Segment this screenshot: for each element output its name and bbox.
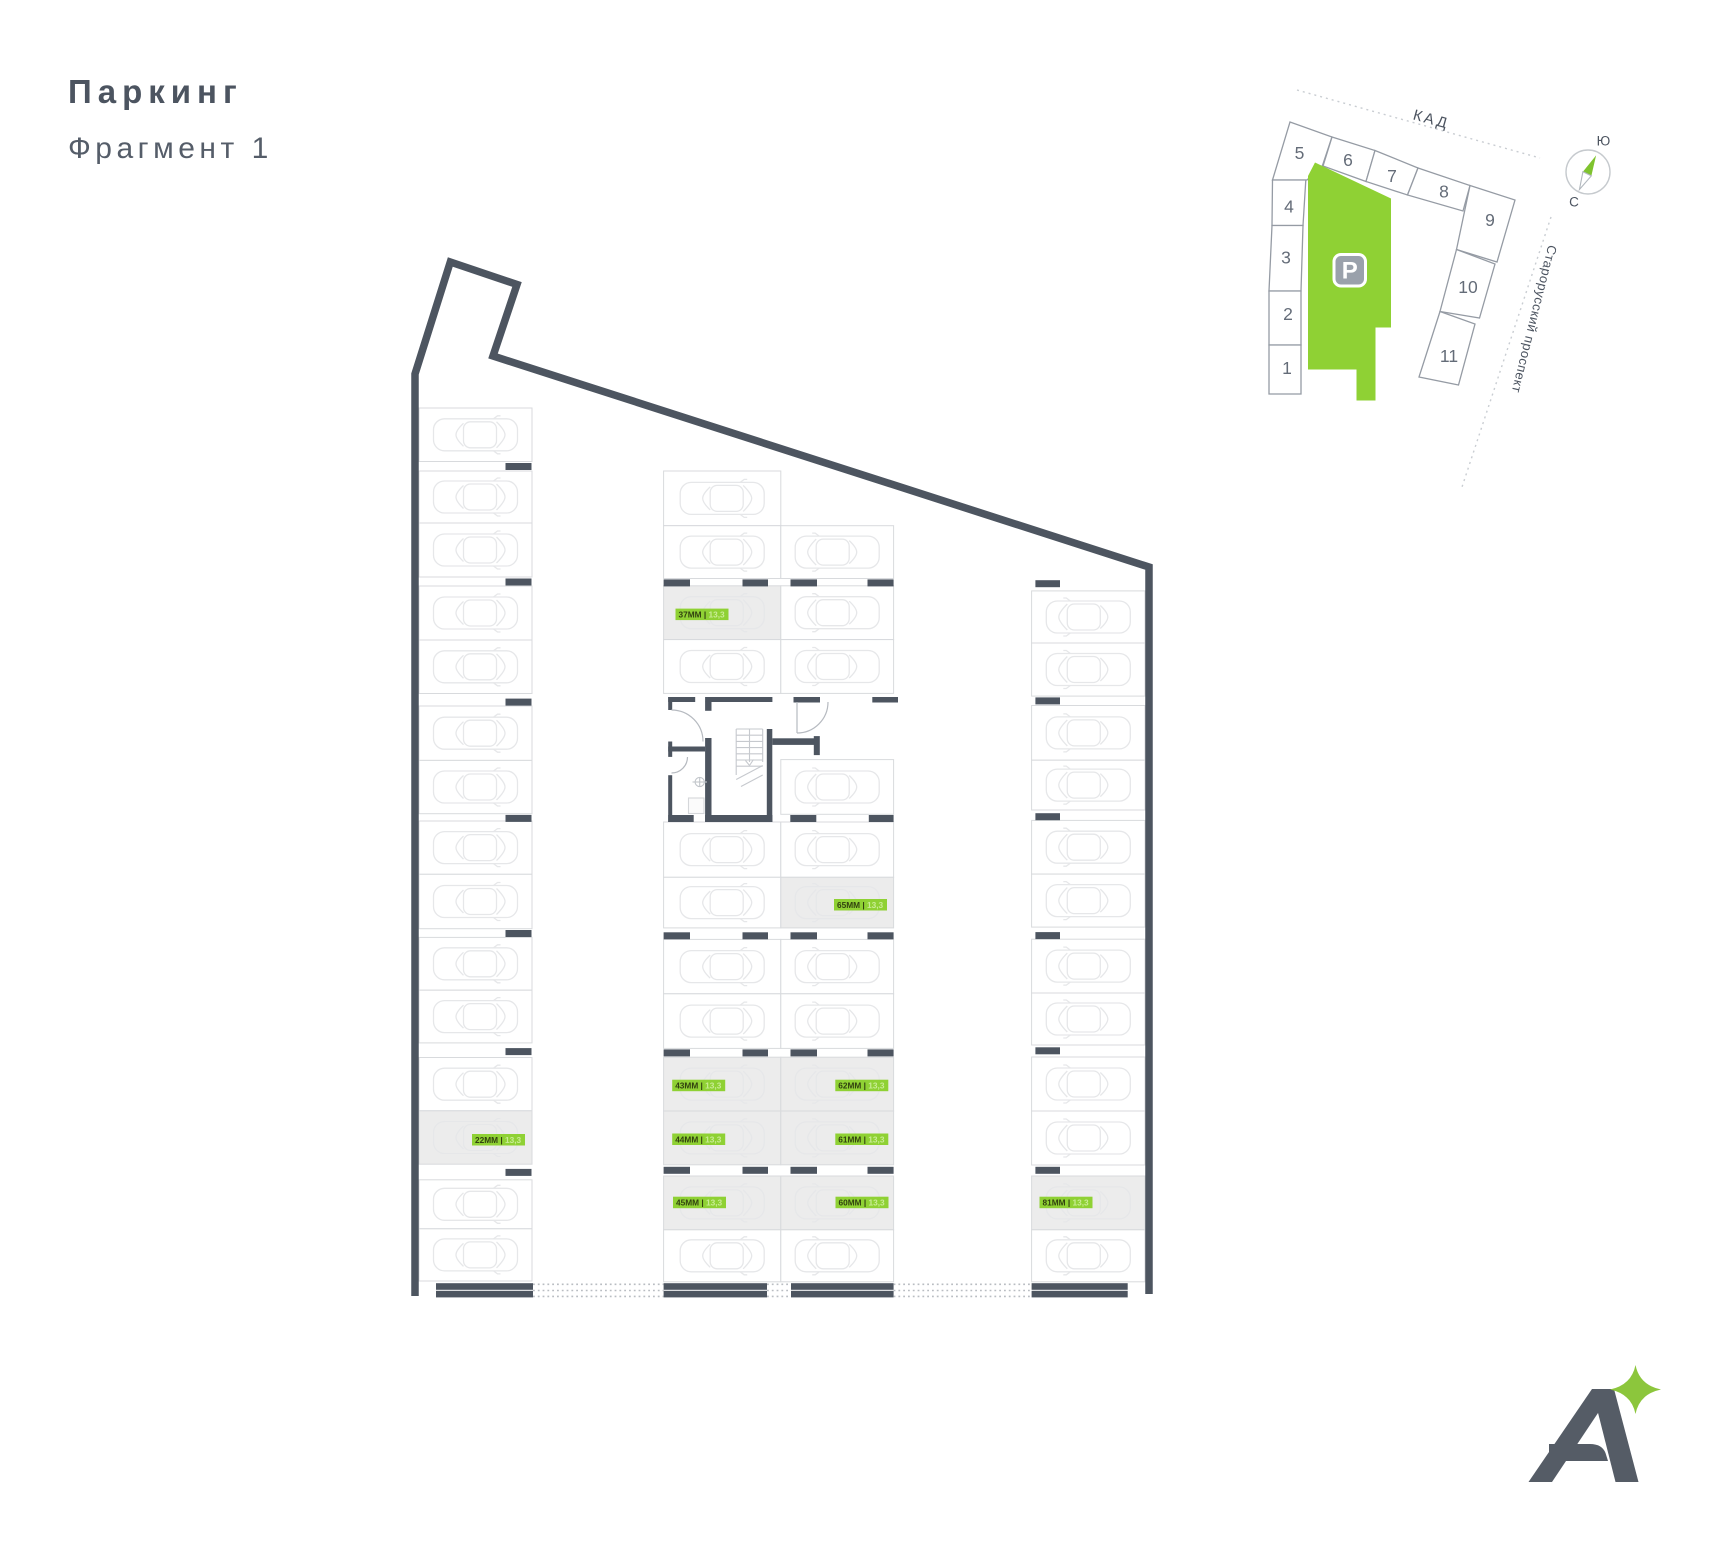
- svg-text:P: P: [1342, 258, 1358, 285]
- svg-text:4: 4: [1284, 197, 1294, 217]
- svg-text:2: 2: [1283, 304, 1293, 324]
- svg-text:65ММ | 13,3: 65ММ | 13,3: [837, 900, 884, 910]
- svg-text:9: 9: [1485, 210, 1495, 230]
- svg-text:11: 11: [1440, 346, 1458, 366]
- svg-text:22ММ | 13,3: 22ММ | 13,3: [475, 1135, 522, 1145]
- svg-text:Паркинг: Паркинг: [68, 73, 243, 110]
- svg-text:Старорусский проспект: Старорусский проспект: [1509, 244, 1560, 395]
- svg-text:КАД: КАД: [1411, 107, 1451, 133]
- svg-text:Ю: Ю: [1597, 134, 1611, 149]
- svg-text:44ММ | 13,3: 44ММ | 13,3: [675, 1134, 722, 1144]
- svg-text:3: 3: [1281, 248, 1291, 268]
- svg-text:5: 5: [1295, 143, 1305, 163]
- svg-text:81ММ | 13,3: 81ММ | 13,3: [1043, 1198, 1090, 1208]
- svg-text:62ММ | 13,3: 62ММ | 13,3: [838, 1081, 885, 1091]
- svg-text:61ММ | 13,3: 61ММ | 13,3: [838, 1134, 885, 1144]
- svg-text:37ММ | 13,3: 37ММ | 13,3: [679, 610, 726, 620]
- svg-text:43ММ | 13,3: 43ММ | 13,3: [675, 1081, 722, 1091]
- svg-text:Фрагмент 1: Фрагмент 1: [68, 132, 273, 165]
- svg-text:7: 7: [1387, 166, 1397, 186]
- svg-text:45ММ | 13,3: 45ММ | 13,3: [676, 1198, 723, 1208]
- svg-text:8: 8: [1439, 182, 1449, 202]
- svg-text:60ММ | 13,3: 60ММ | 13,3: [839, 1198, 886, 1208]
- svg-text:6: 6: [1343, 150, 1353, 170]
- svg-text:С: С: [1569, 195, 1579, 210]
- svg-text:10: 10: [1458, 277, 1478, 297]
- svg-text:1: 1: [1282, 358, 1292, 378]
